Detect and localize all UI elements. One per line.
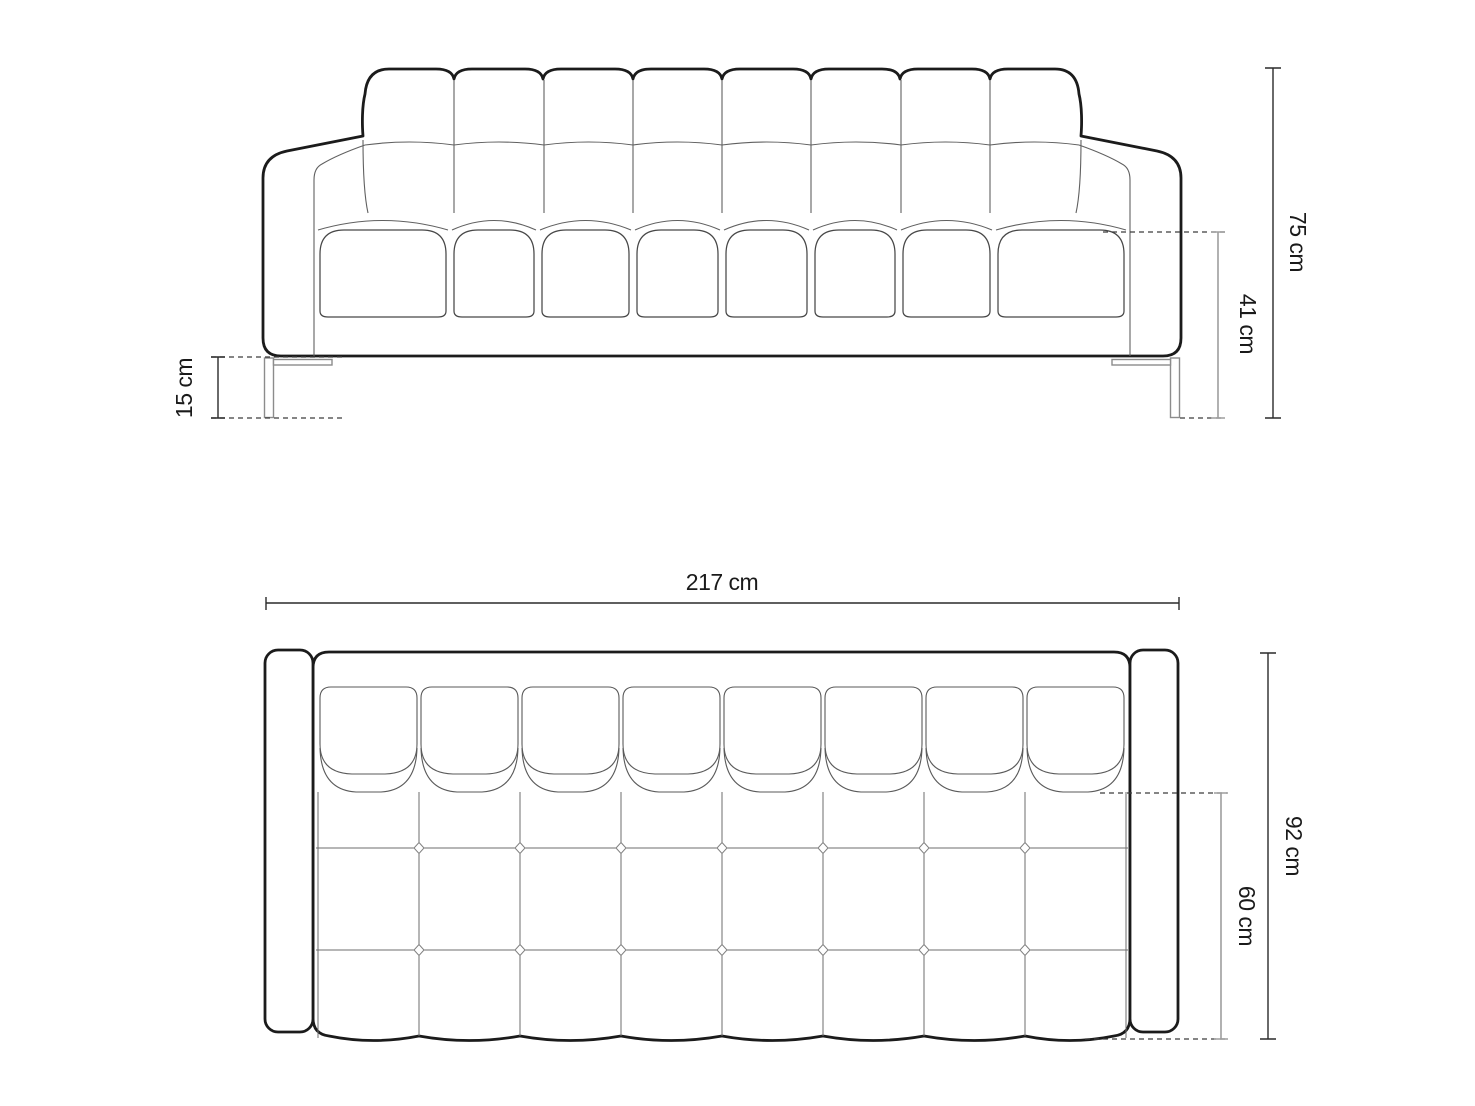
front-height-label: 75 cm	[1285, 212, 1311, 272]
dimension-front-height: 75 cm	[1265, 68, 1311, 418]
plan-left-armrest	[265, 650, 313, 1032]
front-legs	[265, 358, 1180, 418]
seat-cushion	[903, 230, 990, 317]
seat-cushion	[454, 230, 534, 317]
front-leg-height-extension-lines	[211, 357, 345, 418]
seat-cushion	[320, 230, 446, 317]
front-right-leg	[1171, 358, 1180, 418]
diagram-svg: 75 cm 41 cm 15 cm 217 cm	[0, 0, 1475, 1106]
front-seat-height-dim-line	[1211, 232, 1225, 418]
sofa-dimension-diagram: 75 cm 41 cm 15 cm 217 cm	[0, 0, 1475, 1106]
plan-width-dim-line	[266, 597, 1179, 610]
front-left-leg-bracket	[274, 360, 333, 366]
plan-width-label: 217 cm	[686, 569, 758, 595]
front-height-dim-line	[1265, 68, 1281, 418]
dimension-plan-depth: 92 cm	[1260, 653, 1307, 1039]
seat-cushion	[637, 230, 718, 317]
plan-right-armrest	[1130, 650, 1178, 1032]
seat-cushion	[998, 230, 1124, 317]
front-left-leg	[265, 358, 274, 418]
plan-depth-dim-line	[1260, 653, 1276, 1039]
seat-cushion	[542, 230, 629, 317]
seat-cushion	[726, 230, 807, 317]
plan-seat-depth-label: 60 cm	[1234, 886, 1260, 946]
plan-depth-label: 92 cm	[1281, 816, 1307, 876]
dimension-front-leg-height: 15 cm	[171, 357, 345, 418]
seat-cushion	[815, 230, 895, 317]
front-view: 75 cm 41 cm 15 cm	[171, 68, 1311, 418]
plan-seat-depth-dim-line	[1214, 793, 1228, 1039]
front-leg-height-label: 15 cm	[171, 358, 197, 418]
front-right-leg-bracket	[1112, 360, 1171, 366]
front-seat-height-label: 41 cm	[1235, 294, 1261, 354]
top-view: 217 cm 92 cm 60 cm	[265, 569, 1307, 1041]
front-leg-height-dim-line	[211, 357, 225, 418]
dimension-plan-width: 217 cm	[266, 569, 1179, 610]
